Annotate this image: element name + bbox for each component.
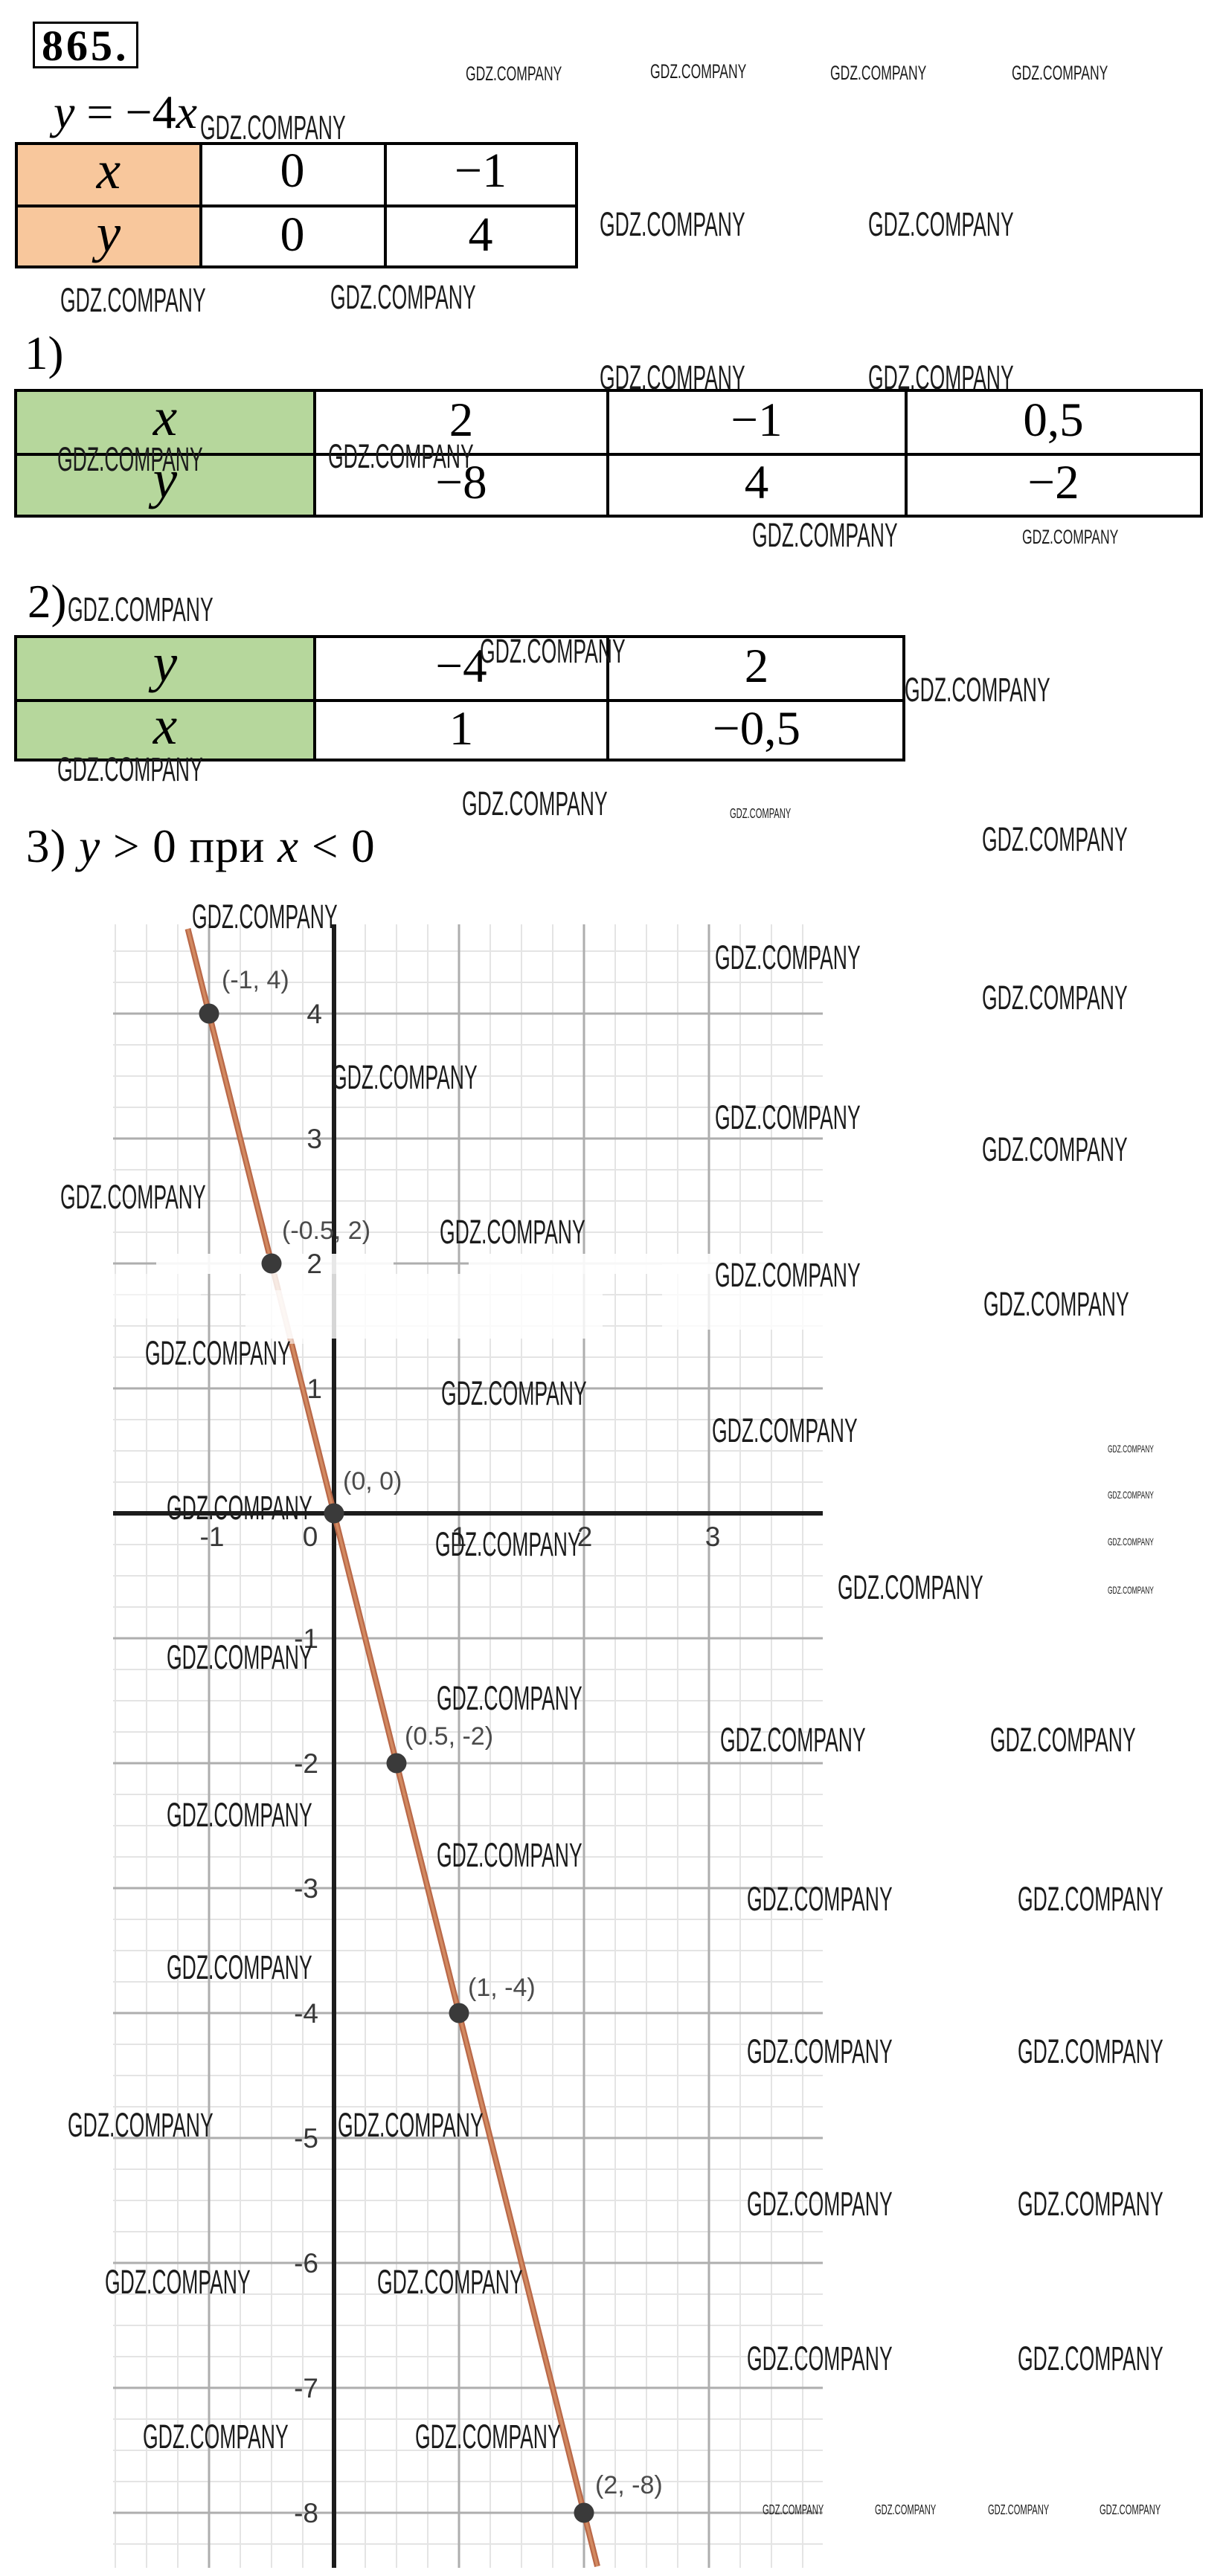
svg-text:-5: -5 bbox=[294, 2123, 318, 2154]
svg-text:-3: -3 bbox=[294, 1873, 318, 1904]
svg-text:-6: -6 bbox=[294, 2248, 318, 2279]
svg-text:(0, 0): (0, 0) bbox=[343, 1467, 402, 1495]
svg-text:-2: -2 bbox=[294, 1748, 318, 1779]
svg-text:3: 3 bbox=[705, 1522, 721, 1552]
svg-text:3: 3 bbox=[306, 1124, 322, 1154]
svg-text:4: 4 bbox=[306, 999, 322, 1029]
svg-text:(1, -4): (1, -4) bbox=[468, 1974, 536, 2002]
svg-text:-7: -7 bbox=[294, 2373, 318, 2403]
svg-text:2: 2 bbox=[306, 1249, 322, 1279]
svg-text:1: 1 bbox=[306, 1374, 322, 1404]
svg-text:-8: -8 bbox=[294, 2498, 318, 2528]
svg-text:(0.5, -2): (0.5, -2) bbox=[405, 1722, 493, 1751]
svg-text:(-0.5, 2): (-0.5, 2) bbox=[282, 1217, 370, 1245]
svg-text:(2, -8): (2, -8) bbox=[595, 2471, 663, 2499]
svg-text:-4: -4 bbox=[294, 1998, 318, 2029]
svg-text:(-1, 4): (-1, 4) bbox=[222, 966, 289, 994]
